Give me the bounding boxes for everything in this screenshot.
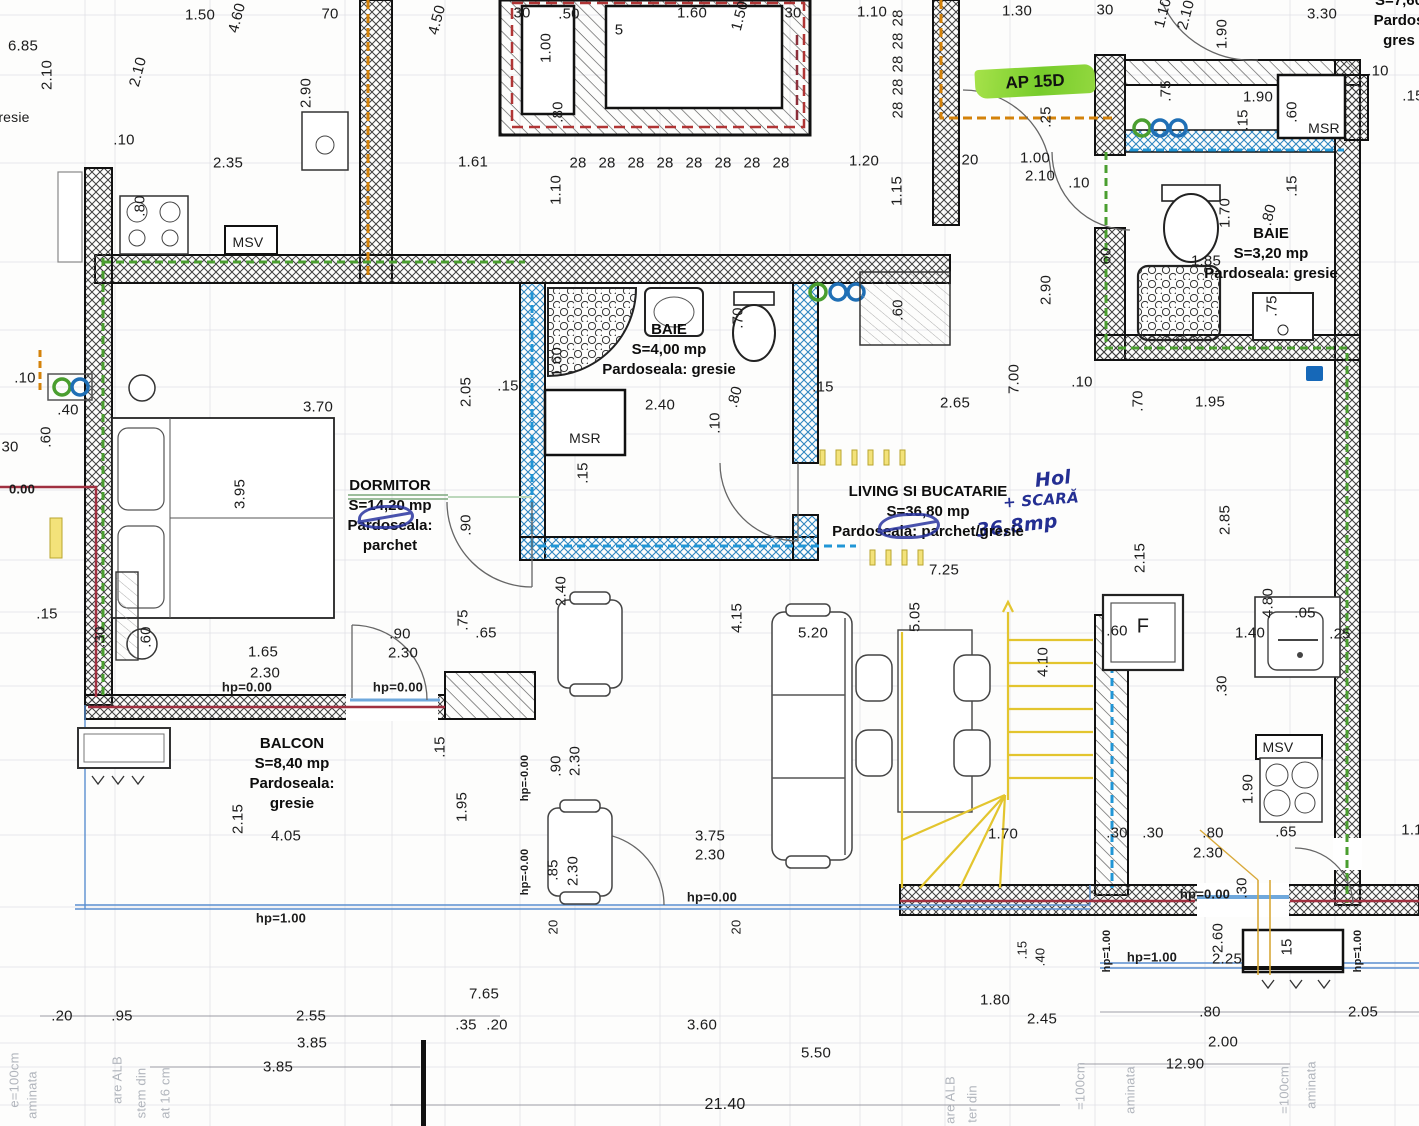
- dimension-label: 70: [321, 6, 338, 23]
- dimension-label: 1.50: [185, 7, 215, 24]
- dimension-label: 2.35: [213, 155, 243, 172]
- dimension-label: 2.25: [1212, 951, 1242, 968]
- dimension-label: 28: [772, 155, 789, 172]
- dimension-label: .15: [1284, 175, 1301, 196]
- dimension-label: .10: [1068, 175, 1089, 192]
- faint-print-label: =100cm: [1073, 1062, 1088, 1110]
- dimension-label: .95: [111, 1008, 132, 1025]
- dimension-label: 2.05: [458, 377, 475, 407]
- dimension-label: 7.00: [1006, 364, 1023, 394]
- dimension-label: 3.75: [695, 828, 725, 845]
- dimension-label: 1.10: [857, 4, 887, 21]
- dimension-label: 0.00: [9, 482, 35, 497]
- dimension-label: 20: [961, 152, 978, 169]
- dimension-label: 20: [729, 920, 744, 935]
- dimension-label: 28: [627, 155, 644, 172]
- dimension-label: .25: [1038, 106, 1055, 127]
- dimension-label: 1.90: [1240, 774, 1257, 804]
- room-label-baie-centru: BAIES=4,00 mpPardoseala: gresie: [602, 320, 735, 380]
- room-label-balcon: BALCONS=8,40 mpPardoseala:gresie: [249, 734, 334, 814]
- dimension-label: hp=1.00: [1127, 950, 1177, 965]
- dimension-label: 1.1: [1401, 822, 1419, 839]
- dimension-label: .15: [432, 736, 449, 757]
- dimension-label: 2.30: [565, 856, 582, 886]
- dimension-label: hp=1.00: [1101, 930, 1113, 973]
- dimension-label: .80: [1199, 1004, 1220, 1021]
- dimension-label: 2.00: [1208, 1034, 1238, 1051]
- dimension-label: gresie: [0, 109, 30, 125]
- dimension-label: .20: [51, 1008, 72, 1025]
- floor-plan: AP 15D 1.504.60706.852.102.10gresie.102.…: [0, 0, 1419, 1126]
- faint-print-label: stem din: [134, 1068, 149, 1119]
- dimension-label: .15: [1235, 109, 1252, 130]
- dimension-label: 2.40: [645, 397, 675, 414]
- dimension-label: 21.40: [704, 1096, 745, 1114]
- dimension-label: 1.70: [988, 826, 1018, 843]
- dimension-label: .50: [558, 6, 579, 23]
- dimension-label: hp=-0.00: [519, 849, 531, 896]
- dimension-label: 3.30: [1307, 6, 1337, 23]
- dimension-label: 2.05: [1348, 1004, 1378, 1021]
- dimension-label: hp=1.00: [256, 911, 306, 926]
- dimension-label: 2.30: [1193, 845, 1223, 862]
- dimension-label: 1.90: [1214, 19, 1231, 49]
- dimension-label: 1.30: [1002, 3, 1032, 20]
- dimension-label: .15: [575, 462, 592, 483]
- faint-print-label: ter din: [965, 1085, 980, 1123]
- dimension-label: 1.95: [454, 792, 471, 822]
- dimension-label: .25: [1329, 626, 1350, 643]
- dimension-label: 30: [513, 5, 530, 22]
- dimension-label: 30: [784, 5, 801, 22]
- dimension-label: 2.60: [1210, 923, 1227, 953]
- dimension-label: .60: [138, 626, 155, 647]
- dimension-label: .60: [38, 426, 55, 447]
- dimension-label: 2.90: [298, 78, 315, 108]
- dimension-label: 1.20: [849, 153, 879, 170]
- dimension-label: .90: [389, 626, 410, 643]
- dimension-label: 5.05: [907, 602, 924, 632]
- dimension-label: 5: [615, 22, 624, 39]
- dimension-label: 28: [685, 155, 702, 172]
- room-label-vecin-partial: S=7,60Pardosgres: [1374, 0, 1419, 51]
- dimension-label: 2.10: [1025, 168, 1055, 185]
- dimension-label: .10: [707, 412, 724, 433]
- dimension-label: MSV: [233, 234, 264, 250]
- faint-print-label: aminata: [1123, 1066, 1138, 1114]
- dimension-label: 28: [743, 155, 760, 172]
- dimension-label: hp=0.00: [1180, 887, 1230, 902]
- dimension-label: 2.55: [296, 1008, 326, 1025]
- ink-scribble: [358, 505, 414, 529]
- dimension-label: .85: [545, 859, 562, 880]
- dimension-label: .65: [475, 625, 496, 642]
- dimension-label: .80: [550, 101, 567, 122]
- dimension-label: 28: [890, 55, 907, 72]
- dimension-label: 2.40: [553, 576, 570, 606]
- dimension-label: 15: [1279, 938, 1296, 955]
- dimension-label: 28: [890, 9, 907, 26]
- dimension-label: .60: [1106, 623, 1127, 640]
- dimension-label: .35: [455, 1017, 476, 1034]
- dimension-label: .90: [458, 514, 475, 535]
- dimension-label: 1.15: [889, 176, 906, 206]
- dimension-label: .30: [1214, 675, 1231, 696]
- dimension-label: 2.30: [567, 746, 584, 776]
- dimension-label: 30: [1096, 2, 1113, 19]
- faint-print-label: are ALB: [943, 1076, 958, 1124]
- dimension-label: 2.85: [1217, 505, 1234, 535]
- dimension-label: .30: [1234, 877, 1251, 898]
- dimension-label: 1.10: [548, 175, 565, 205]
- dimension-label: 28: [890, 101, 907, 118]
- dimension-label: hp=0.00: [687, 890, 737, 905]
- dimension-label: .80: [132, 195, 149, 216]
- dimension-label: 2.65: [940, 395, 970, 412]
- dimension-label: 2.10: [39, 60, 56, 90]
- dimension-label: 4.10: [1035, 647, 1052, 677]
- dimension-label: 20: [546, 920, 561, 935]
- dimension-label: 1.61: [458, 154, 488, 171]
- dimension-label: 28: [598, 155, 615, 172]
- dimension-label: 4.05: [271, 828, 301, 845]
- dimension-label: 28: [890, 32, 907, 49]
- dimension-label: MSR: [569, 430, 601, 446]
- dimension-label: .60: [1098, 247, 1115, 268]
- dimension-label: 30: [1, 439, 18, 456]
- faint-print-label: are ALB: [110, 1056, 125, 1104]
- room-label-baie-dreapta: BAIES=3,20 mpPardoseala: gresie: [1204, 224, 1337, 284]
- faint-print-label: e=100cm: [7, 1052, 22, 1107]
- dimension-label: 12.90: [1166, 1056, 1205, 1073]
- dimension-label: 1.40: [1235, 625, 1265, 642]
- dimension-label: 2.15: [1132, 543, 1149, 573]
- dimension-label: .75: [455, 609, 472, 630]
- dimension-label: 5.50: [801, 1045, 831, 1062]
- dimension-label: 2.90: [1038, 275, 1055, 305]
- dimension-label: 28: [656, 155, 673, 172]
- dimension-label: 7.25: [929, 562, 959, 579]
- dimension-label: MSV: [1263, 739, 1294, 755]
- dimension-label: .05: [1294, 605, 1315, 622]
- dimension-label: 7.65: [469, 986, 499, 1003]
- dimension-label: .15: [1015, 941, 1030, 960]
- handwritten-note: Hol: [1034, 466, 1072, 492]
- dimension-label: 4.80: [1260, 588, 1277, 618]
- dimension-label: .10: [14, 370, 35, 387]
- dimension-label: 6.85: [8, 38, 38, 55]
- dimension-label: .20: [486, 1017, 507, 1034]
- dimension-label: 1.95: [1195, 394, 1225, 411]
- dimension-label: .15: [36, 606, 57, 623]
- dimension-label: .30: [92, 626, 109, 647]
- dimension-label: .65: [1275, 824, 1296, 841]
- dimension-label: hp=1.00: [1352, 930, 1364, 973]
- dimension-label: F: [1137, 616, 1149, 639]
- dimension-label: .30: [1106, 825, 1127, 842]
- dimension-label: .40: [57, 402, 78, 419]
- dimension-label: 1.60: [677, 5, 707, 22]
- dimension-label: hp=0.00: [373, 680, 423, 695]
- dimension-label: .10: [113, 132, 134, 149]
- dimension-label: 1.00: [1020, 150, 1050, 167]
- dimension-label: 1.90: [1243, 89, 1273, 106]
- faint-print-label: =100cm: [1277, 1066, 1292, 1114]
- dimension-label: .15: [497, 378, 518, 395]
- dimension-label: 3.60: [687, 1017, 717, 1034]
- dimension-label: .40: [1033, 948, 1048, 967]
- dimension-label: .60: [890, 299, 907, 320]
- dimension-label: 28: [714, 155, 731, 172]
- dimension-label: .75: [1264, 295, 1281, 316]
- dimension-label: hp=0.00: [222, 680, 272, 695]
- faint-print-label: at 16 cm: [158, 1067, 173, 1118]
- dimension-label: 2.30: [695, 847, 725, 864]
- faint-print-label: aminata: [1304, 1061, 1319, 1109]
- dimension-label: hp=-0.00: [519, 755, 531, 802]
- dimension-label: 2.15: [230, 804, 247, 834]
- dimension-label: 1.00: [538, 33, 555, 63]
- dimension-label: .70: [1130, 390, 1147, 411]
- dimension-label: 3.95: [232, 479, 249, 509]
- dimension-label: .15: [1402, 88, 1419, 105]
- dimension-label: 2.45: [1027, 1011, 1057, 1028]
- dimension-label: .15: [812, 379, 833, 396]
- dimension-label: 1.80: [980, 992, 1010, 1009]
- faint-print-label: aminata: [25, 1071, 40, 1119]
- dimension-label: MSR: [1308, 120, 1340, 136]
- dimension-label: .90: [548, 755, 565, 776]
- dimension-label: 3.85: [297, 1035, 327, 1052]
- dimension-label: 1.65: [248, 644, 278, 661]
- dimension-label: 1.60: [549, 347, 566, 377]
- dimension-label: 28: [890, 78, 907, 95]
- dimension-label: .60: [1284, 101, 1301, 122]
- dimension-label: .10: [1071, 374, 1092, 391]
- dimension-label: .10: [1367, 63, 1388, 80]
- dimension-label: 3.85: [263, 1059, 293, 1076]
- dimension-label: 3.70: [303, 399, 333, 416]
- ink-scribble: [878, 513, 940, 539]
- dimension-label: .30: [1142, 825, 1163, 842]
- dimension-label: 4.15: [729, 603, 746, 633]
- dimension-label: .75: [1158, 80, 1175, 101]
- dimension-label: 5.20: [798, 625, 828, 642]
- dimension-label: 2.30: [388, 645, 418, 662]
- dimension-label: 28: [569, 155, 586, 172]
- dimension-label: .80: [1202, 825, 1223, 842]
